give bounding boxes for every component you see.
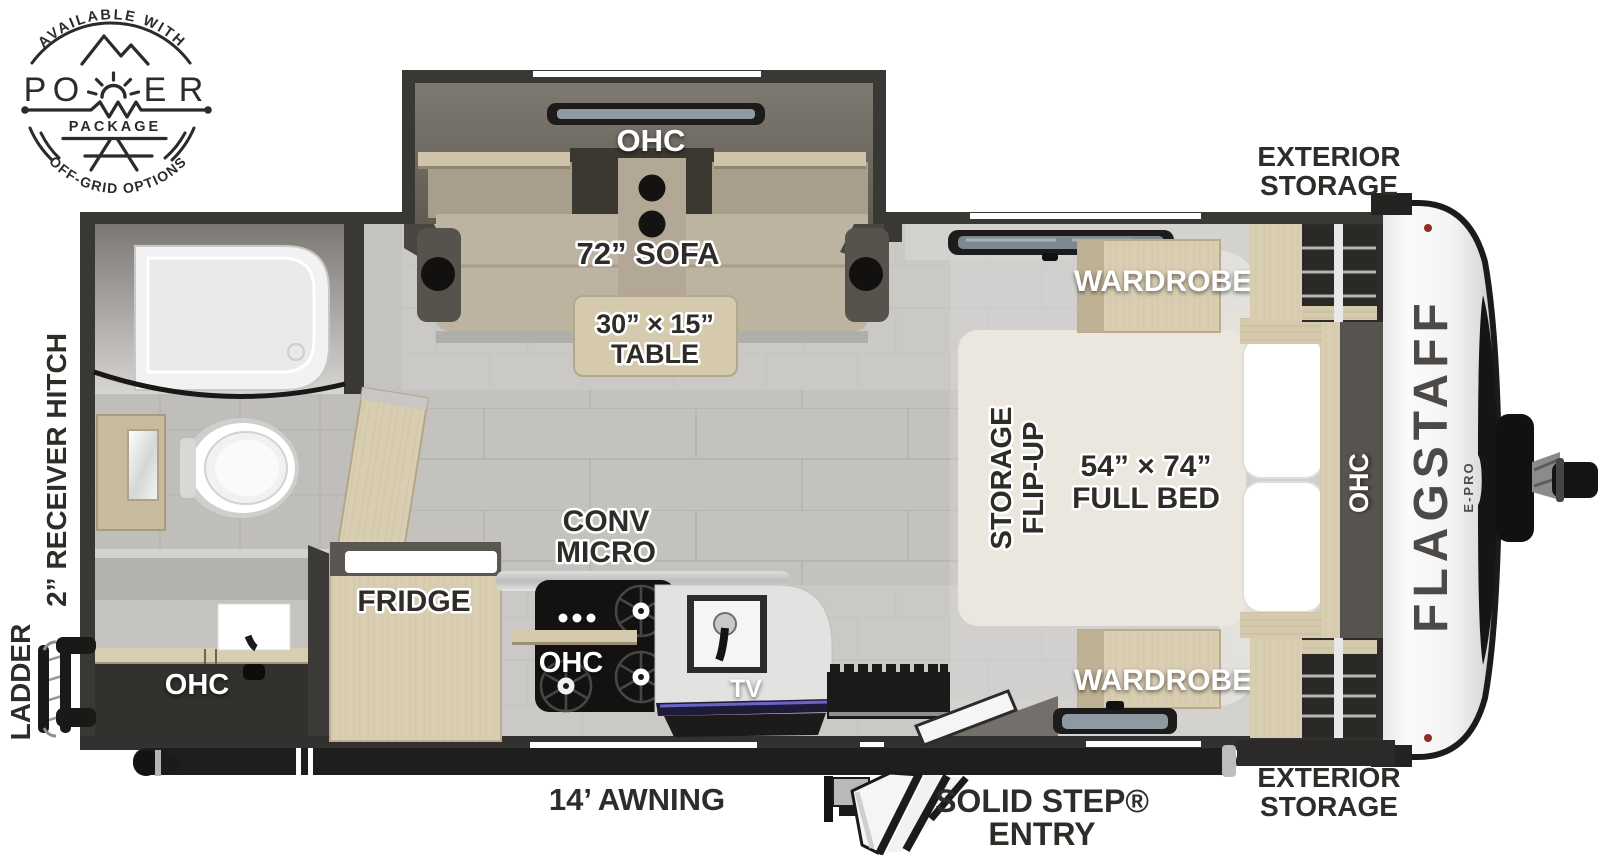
svg-text:30” × 15”: 30” × 15” (596, 309, 714, 339)
svg-text:SOLID STEP®: SOLID STEP® (935, 783, 1149, 819)
svg-text:STORAGE: STORAGE (1260, 791, 1398, 822)
svg-text:EXTERIOR: EXTERIOR (1257, 141, 1400, 172)
svg-text:FLAGSTAFF: FLAGSTAFF (1405, 297, 1458, 633)
svg-text:TABLE: TABLE (611, 339, 699, 369)
svg-text:54” × 74”: 54” × 74” (1081, 450, 1212, 483)
svg-text:14’ AWNING: 14’ AWNING (549, 782, 725, 817)
svg-text:CONV: CONV (563, 505, 650, 538)
svg-text:STORAGE: STORAGE (986, 407, 1018, 550)
svg-text:WARDROBE: WARDROBE (1074, 265, 1252, 298)
svg-text:MICRO: MICRO (556, 536, 656, 569)
svg-text:TV: TV (730, 675, 762, 703)
svg-text:STORAGE: STORAGE (1260, 170, 1398, 201)
svg-text:FULL BED: FULL BED (1072, 482, 1220, 515)
svg-text:FLIP-UP: FLIP-UP (1018, 422, 1050, 535)
svg-text:OHC: OHC (617, 123, 686, 158)
svg-text:P: P (24, 71, 47, 109)
svg-text:EXTERIOR: EXTERIOR (1257, 762, 1400, 793)
svg-text:OHC: OHC (539, 647, 604, 679)
svg-text:O: O (53, 71, 79, 109)
svg-text:E-PRO: E-PRO (1461, 461, 1476, 512)
svg-text:ENTRY: ENTRY (988, 816, 1095, 852)
svg-text:FRIDGE: FRIDGE (357, 585, 470, 618)
svg-text:E: E (144, 71, 167, 109)
svg-text:LADDER: LADDER (5, 624, 36, 741)
svg-text:OHC: OHC (1344, 453, 1374, 513)
svg-text:2” RECEIVER HITCH: 2” RECEIVER HITCH (41, 333, 72, 607)
svg-text:72” SOFA: 72” SOFA (577, 236, 720, 271)
svg-text:R: R (179, 71, 204, 109)
svg-text:PACKAGE: PACKAGE (69, 119, 161, 135)
svg-text:WARDROBE: WARDROBE (1074, 664, 1252, 697)
svg-text:OHC: OHC (165, 669, 230, 701)
